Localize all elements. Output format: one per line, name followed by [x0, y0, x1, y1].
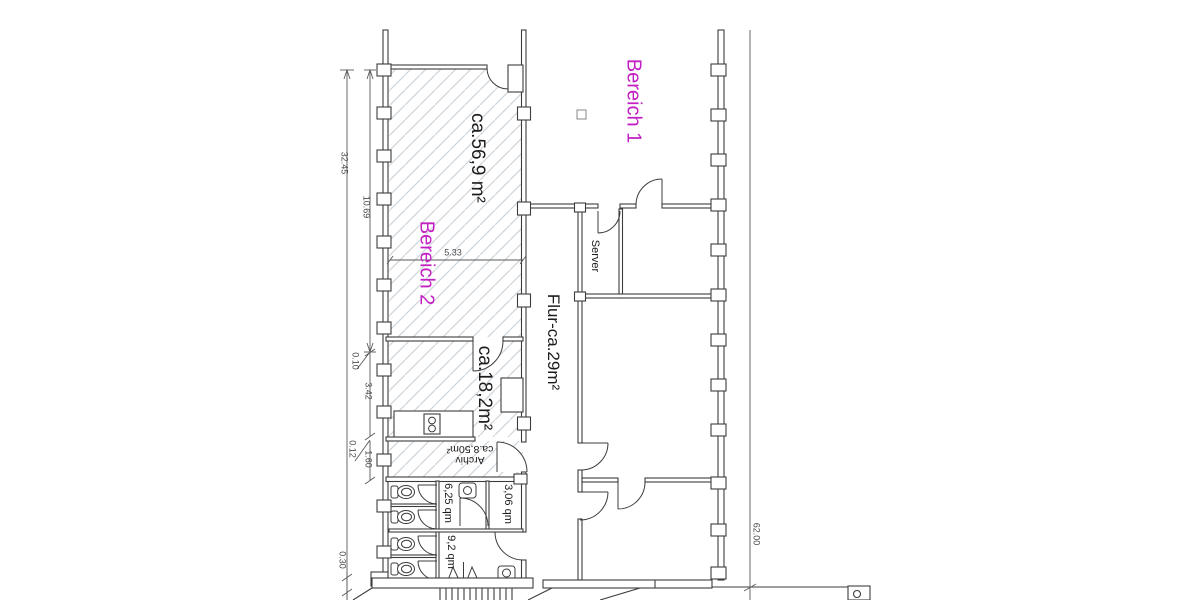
area-label-bereich2: Bereich 2 [416, 221, 437, 306]
dimension-342: 3.42 [363, 382, 372, 400]
bottom-structure [353, 578, 870, 600]
dimension-6200: 62.00 [751, 523, 760, 546]
area-label-bereich1: Bereich 1 [623, 59, 644, 144]
column-marker [577, 110, 586, 119]
room-label-flur: Flur-ca.29m² [544, 294, 562, 390]
dimension-3245: 32.45 [339, 152, 348, 175]
toilet-icon [391, 538, 415, 551]
room-label-306qm: 3,06 qm [501, 484, 513, 524]
archiv-line1: Archiv [447, 454, 494, 465]
toilet-icon [391, 563, 415, 576]
hob-burner [429, 425, 436, 432]
room-label-625qm: 6,25 qm [441, 483, 453, 523]
floorplan-canvas: Bereich 1 Bereich 2 ca.56,9 m² ca.18,2m²… [0, 0, 1200, 600]
dimension-012: 0.12 [347, 440, 356, 458]
toilet-icon [391, 486, 415, 499]
dimension-1069: 10.69 [361, 196, 370, 219]
room-label-archiv: Archiv ca.8,50m² [447, 443, 494, 465]
toilet-icon [391, 511, 415, 524]
floorplan-drawing [0, 0, 1200, 600]
dimension-160: 1.60 [363, 450, 372, 468]
sink-icon [459, 483, 476, 498]
stairs [440, 588, 512, 600]
dimension-010: 0.10 [350, 352, 359, 370]
hob-burner [429, 417, 436, 424]
room-label-92qm: 9,2 qm [444, 535, 456, 569]
archiv-line2: ca.8,50m² [447, 443, 494, 454]
dimension-533: 5.33 [444, 248, 462, 257]
room-label-server: Server [588, 240, 600, 272]
dimension-030: 0.30 [337, 551, 346, 569]
room-label-18qm: ca.18,2m² [474, 346, 494, 430]
room-label-56qm: ca.56,9 m² [467, 113, 487, 203]
